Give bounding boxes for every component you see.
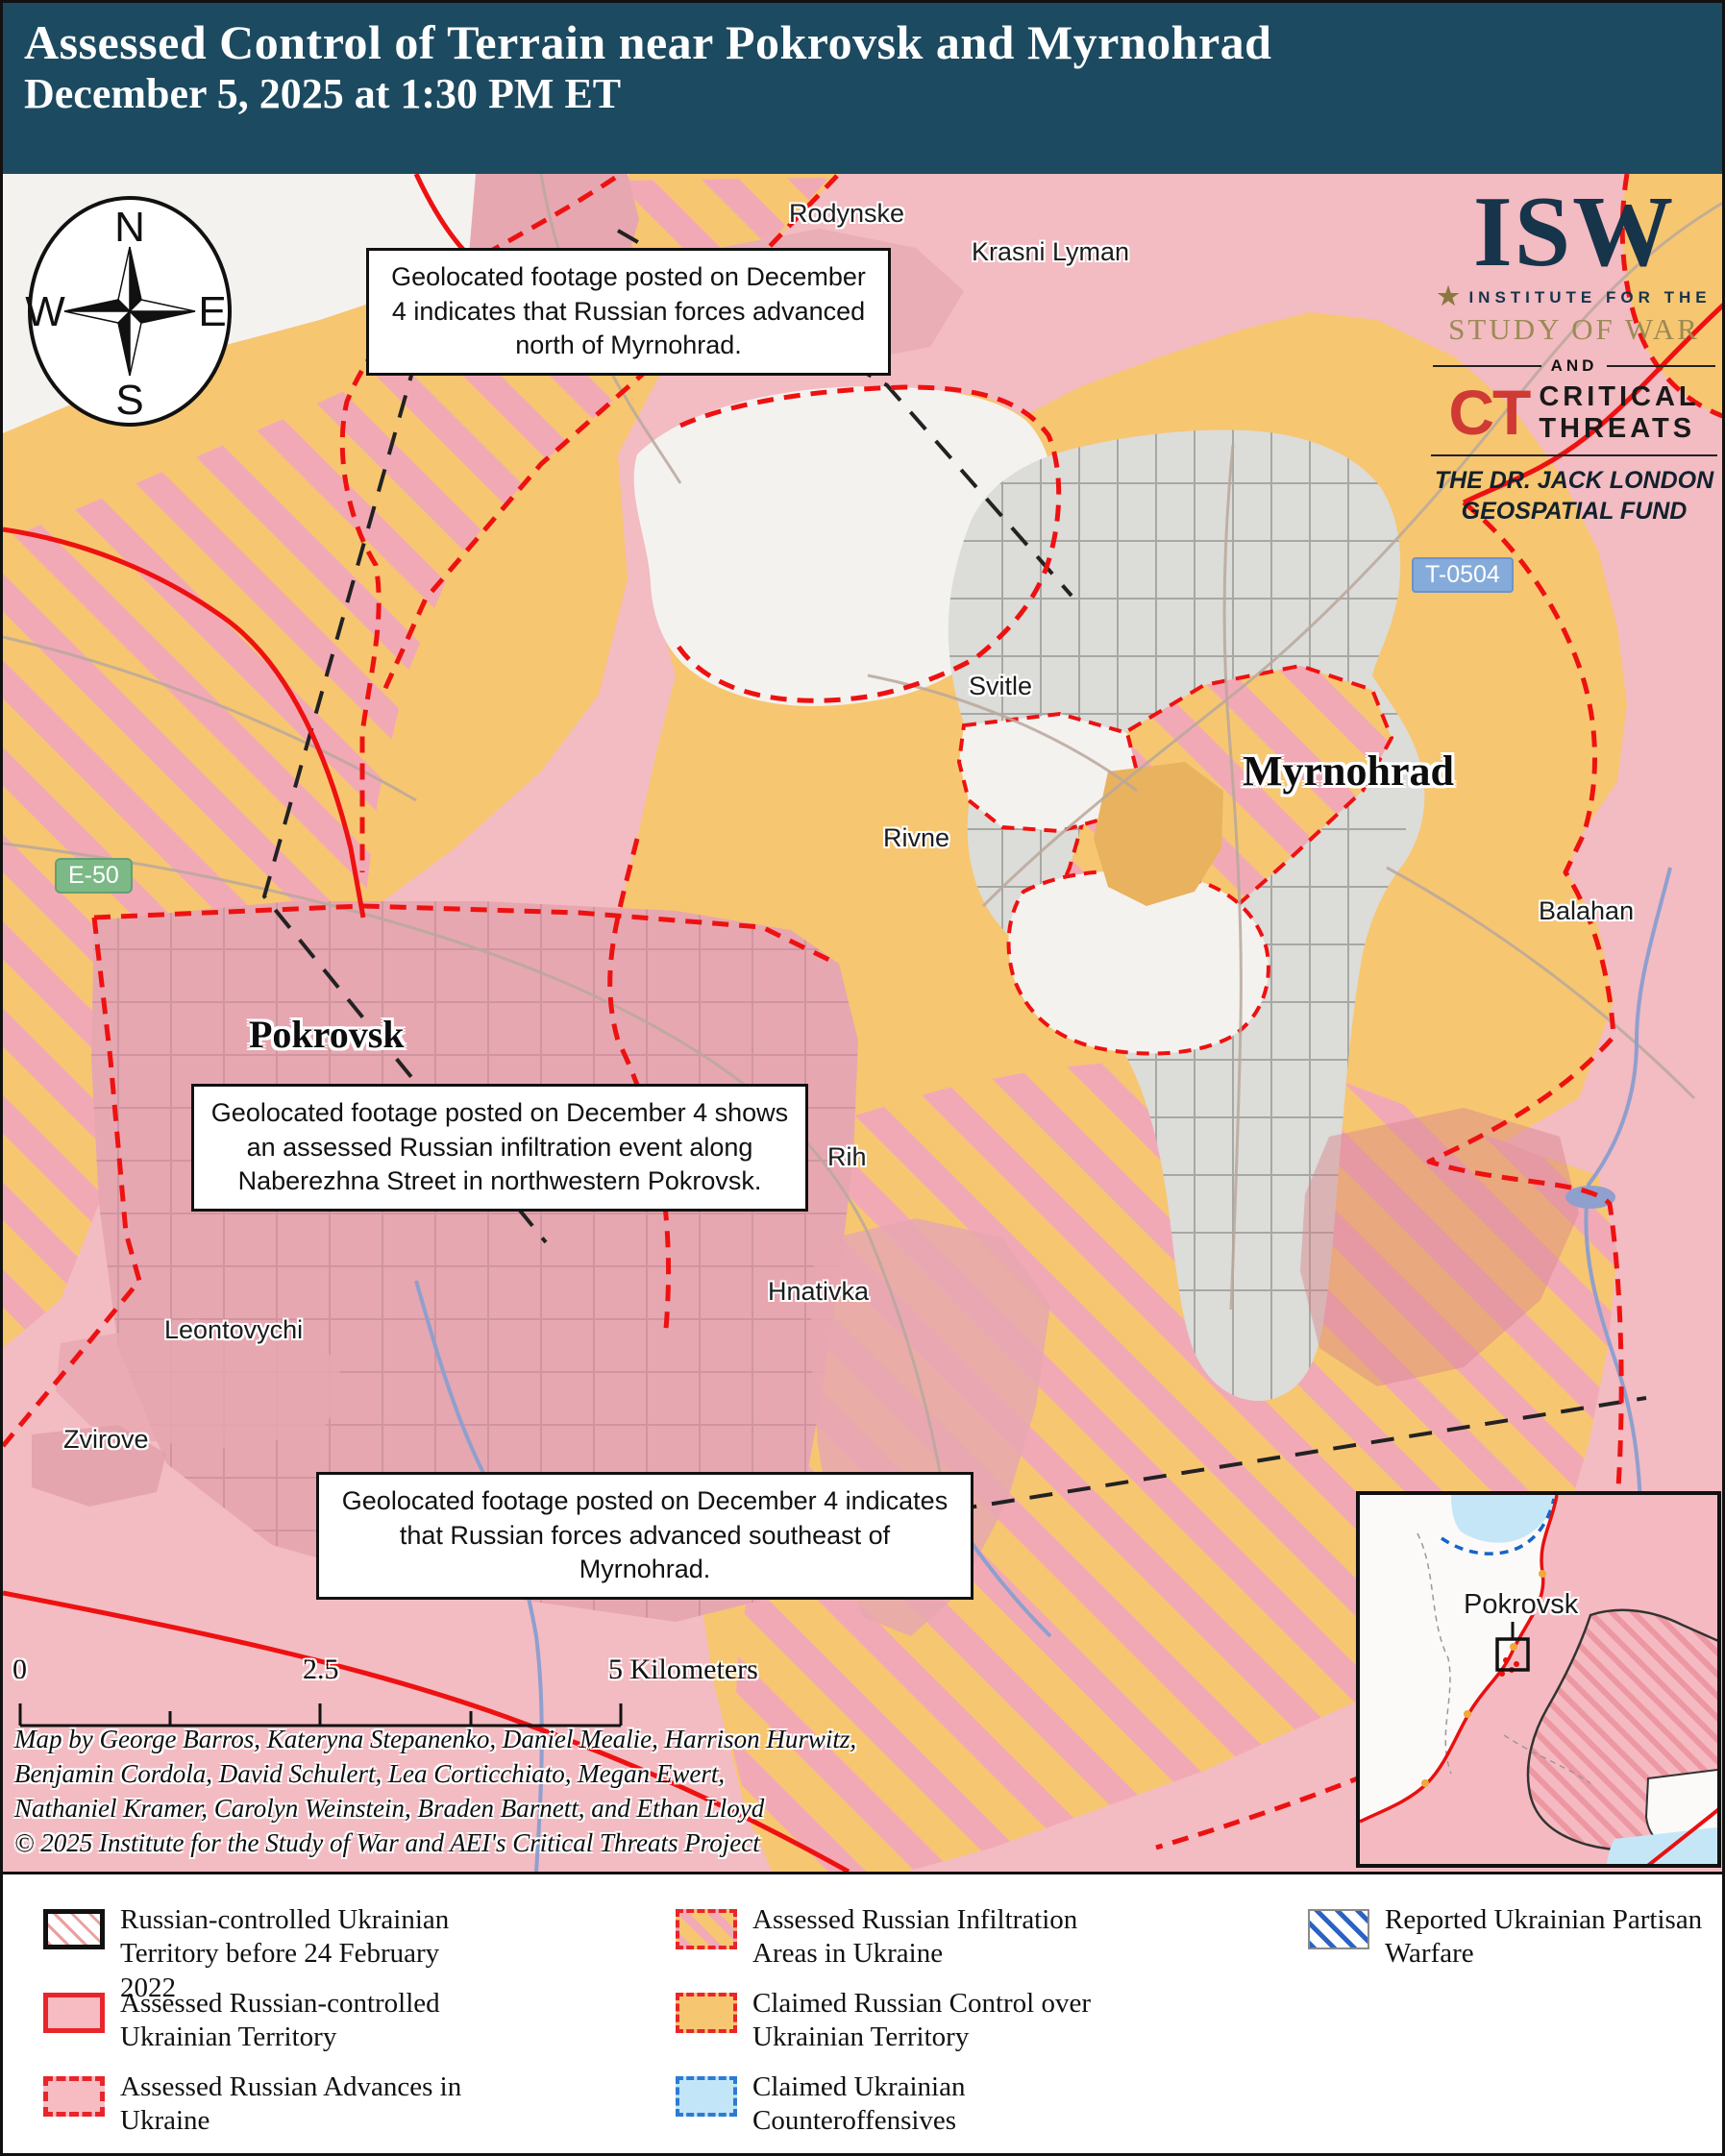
legend-item-infiltration: Assessed Russian Infiltration Areas in U… bbox=[676, 1903, 1137, 1972]
place-label-rih: Rih bbox=[827, 1142, 867, 1172]
legend-label-infiltration: Assessed Russian Infiltration Areas in U… bbox=[752, 1903, 1137, 1972]
place-label-leontovychi: Leontovychi bbox=[164, 1315, 303, 1345]
legend-label-russian-controlled: Assessed Russian-controlled Ukrainian Te… bbox=[120, 1987, 495, 2055]
legend-swatch-claimed-control bbox=[676, 1993, 737, 2033]
page-title: Assessed Control of Terrain near Pokrovs… bbox=[24, 16, 1725, 69]
road-badge-t0504: T-0504 bbox=[1412, 557, 1514, 593]
compass-w: W bbox=[25, 288, 65, 335]
legend-label-russian-advances: Assessed Russian Advances in Ukraine bbox=[120, 2070, 495, 2139]
locator-inset-map: Pokrovsk bbox=[1356, 1491, 1721, 1868]
place-label-hnativka: Hnativka bbox=[768, 1277, 869, 1307]
place-label-krasni-lyman: Krasni Lyman bbox=[972, 237, 1129, 267]
legend-item-russian-advances: Assessed Russian Advances in Ukraine bbox=[43, 2070, 495, 2139]
legend-label-counteroffensives: Claimed Ukrainian Counteroffensives bbox=[752, 2070, 1137, 2139]
legend-swatch-pre2022 bbox=[43, 1909, 105, 1949]
place-label-pokrovsk: Pokrovsk bbox=[249, 1012, 405, 1057]
fund-line2: GEOSPATIAL FUND bbox=[1462, 498, 1688, 525]
critical-label: CRITICAL bbox=[1539, 381, 1699, 412]
legend-swatch-counteroffensives bbox=[676, 2076, 737, 2117]
place-label-myrnohrad: Myrnohrad bbox=[1243, 747, 1454, 796]
place-label-rivne: Rivne bbox=[883, 823, 949, 853]
header: Assessed Control of Terrain near Pokrovs… bbox=[3, 3, 1725, 174]
place-label-balahan: Balahan bbox=[1539, 896, 1634, 926]
legend-item-russian-controlled: Assessed Russian-controlled Ukrainian Te… bbox=[43, 1987, 495, 2055]
ct-logo-icon: CT bbox=[1448, 384, 1529, 441]
road-badge-e50: E-50 bbox=[55, 858, 133, 894]
and-label: AND bbox=[1551, 356, 1598, 376]
compass-rose: N S W E bbox=[24, 191, 235, 431]
credits-line4: © 2025 Institute for the Study of War an… bbox=[14, 1826, 856, 1861]
legend-swatch-russian-controlled bbox=[43, 1993, 105, 2033]
annotation-north-myrnohrad: Geolocated footage posted on December 4 … bbox=[366, 248, 891, 376]
credits-line2: Benjamin Cordola, David Schulert, Lea Co… bbox=[14, 1757, 856, 1792]
credits-line1: Map by George Barros, Kateryna Stepanenk… bbox=[14, 1723, 856, 1757]
compass-n: N bbox=[114, 204, 145, 251]
study-of-war: STUDY OF WAR bbox=[1425, 312, 1723, 347]
isw-ct-logo: ISW ★ INSTITUTE FOR THE STUDY OF WAR AND… bbox=[1425, 184, 1723, 527]
legend: Russian-controlled Ukrainian Territory b… bbox=[3, 1872, 1725, 2156]
compass-s: S bbox=[115, 377, 143, 424]
threats-label: THREATS bbox=[1539, 413, 1695, 444]
isw-map-page: Assessed Control of Terrain near Pokrovs… bbox=[0, 0, 1725, 2156]
legend-label-claimed-control: Claimed Russian Control over Ukrainian T… bbox=[752, 1987, 1137, 2055]
institute-for-the: INSTITUTE FOR THE bbox=[1468, 288, 1711, 306]
place-label-zvirove: Zvirove bbox=[63, 1425, 149, 1455]
inset-pokrovsk-label: Pokrovsk bbox=[1464, 1589, 1578, 1621]
star-icon: ★ bbox=[1437, 282, 1459, 310]
page-subtitle-date: December 5, 2025 at 1:30 PM ET bbox=[24, 69, 1725, 120]
legend-label-partisan: Reported Ukrainian Partisan Warfare bbox=[1385, 1903, 1712, 1972]
compass-e: E bbox=[198, 288, 226, 335]
place-label-svitle: Svitle bbox=[969, 672, 1032, 701]
inset-drawing bbox=[1360, 1495, 1721, 1868]
legend-item-claimed-control: Claimed Russian Control over Ukrainian T… bbox=[676, 1987, 1137, 2055]
scale-label-5km: 5 Kilometers bbox=[608, 1654, 758, 1686]
place-label-rodynske: Rodynske bbox=[789, 199, 904, 229]
legend-swatch-russian-advances bbox=[43, 2076, 105, 2117]
annotation-southeast-myrnohrad: Geolocated footage posted on December 4 … bbox=[316, 1472, 973, 1600]
legend-swatch-infiltration bbox=[676, 1909, 737, 1949]
scale-label-0: 0 bbox=[12, 1654, 27, 1686]
legend-item-counteroffensives: Claimed Ukrainian Counteroffensives bbox=[676, 2070, 1137, 2139]
credits-line3: Nathaniel Kramer, Carolyn Weinstein, Bra… bbox=[14, 1792, 856, 1826]
map-credits: Map by George Barros, Kateryna Stepanenk… bbox=[14, 1723, 856, 1861]
logo-divider bbox=[1431, 454, 1717, 456]
map-canvas: N S W E ISW ★ INSTITUTE FOR THE STUDY OF… bbox=[3, 174, 1725, 1872]
fund-line1: THE DR. JACK LONDON bbox=[1435, 467, 1713, 494]
annotation-pokrovsk-infiltration: Geolocated footage posted on December 4 … bbox=[191, 1084, 808, 1212]
legend-swatch-partisan bbox=[1308, 1909, 1369, 1949]
scale-label-2-5: 2.5 bbox=[303, 1654, 339, 1686]
legend-item-partisan: Reported Ukrainian Partisan Warfare bbox=[1308, 1903, 1712, 1972]
isw-logo-text: ISW bbox=[1425, 184, 1723, 280]
